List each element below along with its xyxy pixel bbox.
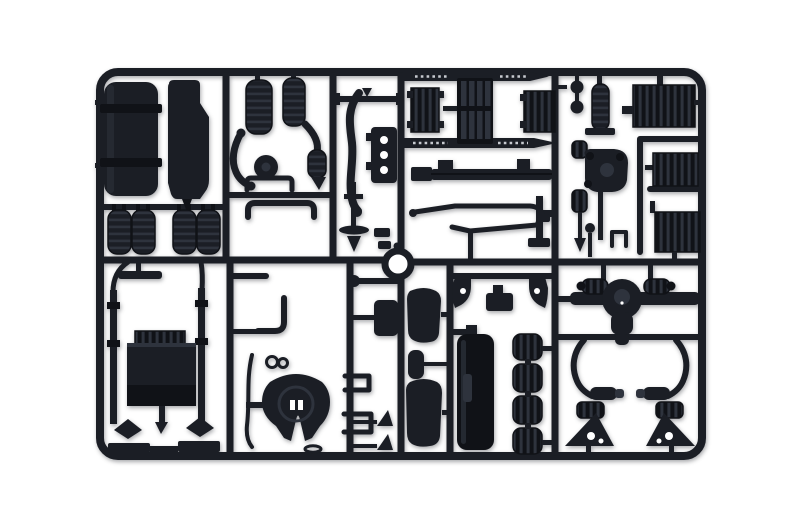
tank-strap [100, 158, 162, 167]
sprue-gate [468, 231, 473, 259]
part-air-cylinder-b [283, 71, 305, 126]
part-spring-hangers [452, 277, 548, 311]
hub-shaft [598, 192, 603, 240]
part-radiator-left [407, 88, 457, 132]
tank-highlight [107, 85, 114, 193]
part-small-mirror [408, 350, 450, 379]
sprue-gate [443, 106, 457, 111]
air-tank [197, 204, 220, 254]
sprue-gate [645, 165, 653, 170]
part-fifth-wheel-plate [246, 357, 330, 453]
sprue-gate [246, 402, 264, 408]
grille-band [457, 106, 493, 111]
part-suspension-left [565, 340, 624, 456]
part-ribbed-box-lower [650, 201, 700, 259]
photo-canvas [0, 0, 800, 530]
sprue-gate [586, 446, 591, 456]
sprue-gate [557, 85, 567, 89]
mirror-foot [178, 441, 220, 452]
sprue-photo [0, 0, 800, 530]
mirror-foot [108, 443, 150, 453]
sprue-gate [441, 312, 450, 317]
tank-strap [100, 104, 162, 113]
part-exhaust-stack [168, 80, 209, 212]
part-knob [348, 275, 360, 287]
part-intake-hose-right [305, 124, 326, 190]
part-wing-bracket [334, 88, 402, 105]
air-tank [132, 204, 155, 254]
air-tank [173, 204, 196, 254]
sprue-gate [136, 260, 141, 271]
part-engine-block [127, 331, 196, 434]
part-radiator-right [520, 91, 555, 132]
sprue-gate [650, 201, 655, 213]
part-air-filter [585, 74, 615, 135]
sprue-gate [352, 315, 374, 320]
part-canister-stack [513, 334, 556, 454]
ring-fitting [267, 357, 278, 368]
part-radiator-grille [457, 78, 493, 144]
mirror-head [114, 419, 142, 439]
sprue-gate [230, 329, 258, 334]
part-air-cylinder-a [246, 71, 272, 134]
sprue-gate [442, 410, 450, 415]
part-ribbed-box-middle [645, 153, 698, 186]
part-plate-three-holes [366, 127, 397, 183]
pill-fitting [305, 446, 321, 452]
sprue-locating-ring [385, 251, 411, 277]
sprue-gate [558, 296, 572, 302]
part-bumper-guard [248, 203, 314, 217]
sprue-gate [672, 252, 677, 259]
sprue-gate [542, 440, 556, 445]
part-knob-pair [557, 71, 584, 114]
part-c-bracket [612, 232, 626, 246]
part-suspension-right [636, 340, 695, 456]
part-front-bumper-bar [411, 159, 552, 181]
part-ball-fitting [585, 223, 595, 257]
sprue-gate [542, 346, 556, 351]
part-mirror-housing-upper [407, 288, 450, 343]
mirror-head [186, 417, 214, 437]
part-mirror-housing-lower [406, 379, 450, 447]
sprue-gate [694, 100, 702, 105]
part-hub-assembly [572, 141, 628, 252]
plate-hole [380, 136, 388, 144]
sprue-gate [352, 420, 377, 424]
part-rear-axle [558, 261, 700, 345]
ring-fitting [279, 359, 288, 368]
part-drive-shaft [339, 182, 369, 252]
plate-hole [380, 166, 388, 174]
part-intake-hose-left [233, 129, 255, 191]
sprue-gate [424, 362, 450, 366]
part-flywheel-disc [254, 155, 278, 179]
part-side-panel [457, 325, 494, 450]
plate-hole [380, 151, 388, 159]
air-tank [108, 204, 131, 254]
hose-bellows [308, 150, 326, 178]
part-air-tank-row [108, 204, 220, 254]
part-small-fittings [374, 228, 401, 250]
part-fuel-tank [100, 82, 162, 196]
part-steering-rod [409, 206, 550, 259]
part-elbow-pipe [230, 298, 284, 334]
part-mud-flap [352, 300, 398, 336]
valve-cover [135, 331, 185, 344]
sprue-gate [352, 444, 377, 448]
part-battery-box [622, 76, 702, 127]
part-gear-lever [247, 355, 252, 447]
